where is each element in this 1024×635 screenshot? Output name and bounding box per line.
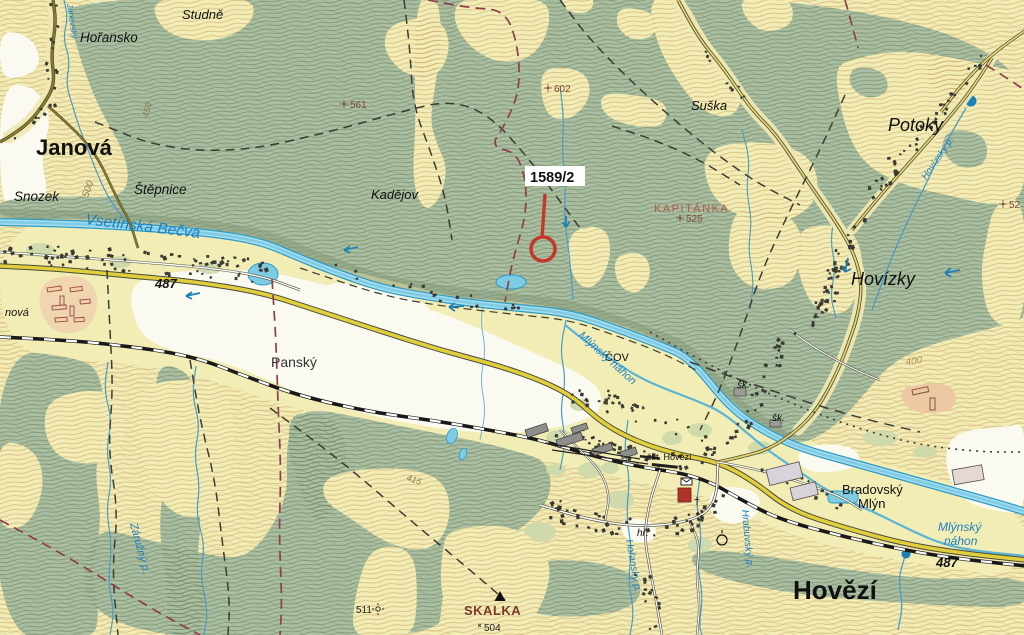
svg-text:487: 487 xyxy=(935,555,958,570)
svg-text:511: 511 xyxy=(356,605,372,616)
svg-text:487: 487 xyxy=(154,276,177,291)
svg-text:Suška: Suška xyxy=(691,98,727,113)
svg-text:Studně: Studně xyxy=(182,7,223,22)
svg-text:†: † xyxy=(694,496,700,508)
svg-text:525: 525 xyxy=(686,214,703,225)
svg-text:hř.: hř. xyxy=(637,528,649,539)
svg-text:náhon: náhon xyxy=(944,534,978,548)
svg-text:Potoky: Potoky xyxy=(888,115,944,135)
svg-text:Hovízky: Hovízky xyxy=(851,269,916,289)
svg-text:KAPITÁNKA: KAPITÁNKA xyxy=(654,202,729,215)
svg-text:504: 504 xyxy=(484,623,501,634)
svg-text:šk.: šk. xyxy=(772,413,785,424)
svg-text:Kadějov: Kadějov xyxy=(371,187,419,202)
svg-text:561: 561 xyxy=(350,100,367,111)
svg-text:žst. Hovězí: žst. Hovězí xyxy=(647,452,692,462)
svg-text:602: 602 xyxy=(554,84,571,95)
svg-text:SKALKA: SKALKA xyxy=(464,603,521,618)
svg-text:Mlýn: Mlýn xyxy=(858,496,885,511)
svg-text:Hořansko: Hořansko xyxy=(80,30,138,45)
svg-text:Mlýnský: Mlýnský xyxy=(938,520,982,534)
svg-text:Bradovský: Bradovský xyxy=(842,482,903,497)
svg-text:Štěpnice: Štěpnice xyxy=(134,182,187,197)
svg-text:Janová: Janová xyxy=(36,135,113,160)
svg-text:Snozek: Snozek xyxy=(14,189,60,204)
svg-text:šk.: šk. xyxy=(737,380,750,391)
svg-text:nová: nová xyxy=(5,307,29,319)
svg-text:1589/2: 1589/2 xyxy=(530,170,574,186)
svg-text:Hovězí: Hovězí xyxy=(793,575,878,605)
svg-text:Panský: Panský xyxy=(271,354,317,370)
svg-text:52: 52 xyxy=(1009,200,1021,211)
